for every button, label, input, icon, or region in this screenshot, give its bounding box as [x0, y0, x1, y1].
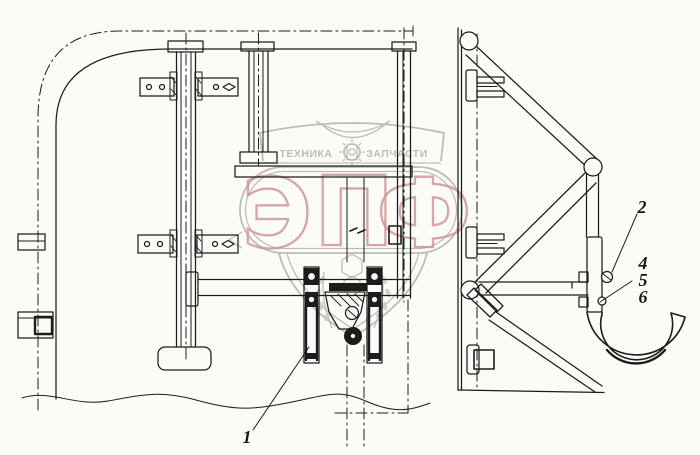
spare-wheel-hook — [587, 312, 685, 363]
side-bracket-lower — [467, 345, 494, 374]
side-view-drawing — [458, 28, 685, 393]
diagram-page: ТЕХНИКА ЗАПЧАСТИ Э П Ф — [0, 0, 700, 455]
leader-line-1 — [253, 347, 309, 430]
hook-fasteners — [579, 272, 613, 308]
callout-6: 6 — [639, 287, 648, 307]
technical-drawing-canvas: ТЕХНИКА ЗАПЧАСТИ Э П Ф — [0, 0, 700, 455]
callout-2: 2 — [637, 197, 647, 217]
callout-1: 1 — [243, 427, 252, 447]
upper-strap-bracket — [140, 72, 238, 100]
watermark-letter-e: Э — [242, 158, 312, 270]
leader-line-5 — [600, 281, 632, 302]
side-bracket-middle — [466, 227, 504, 258]
support-channel-left — [304, 267, 319, 363]
watermark-letter-f: Ф — [376, 158, 471, 270]
middle-strap-bracket — [138, 230, 238, 257]
leader-line-2 — [612, 214, 637, 272]
watermark-emblem: ТЕХНИКА ЗАПЧАСТИ Э П Ф — [229, 121, 472, 337]
support-channel-right — [367, 267, 382, 363]
watermark-letters: Э П Ф — [242, 156, 472, 270]
